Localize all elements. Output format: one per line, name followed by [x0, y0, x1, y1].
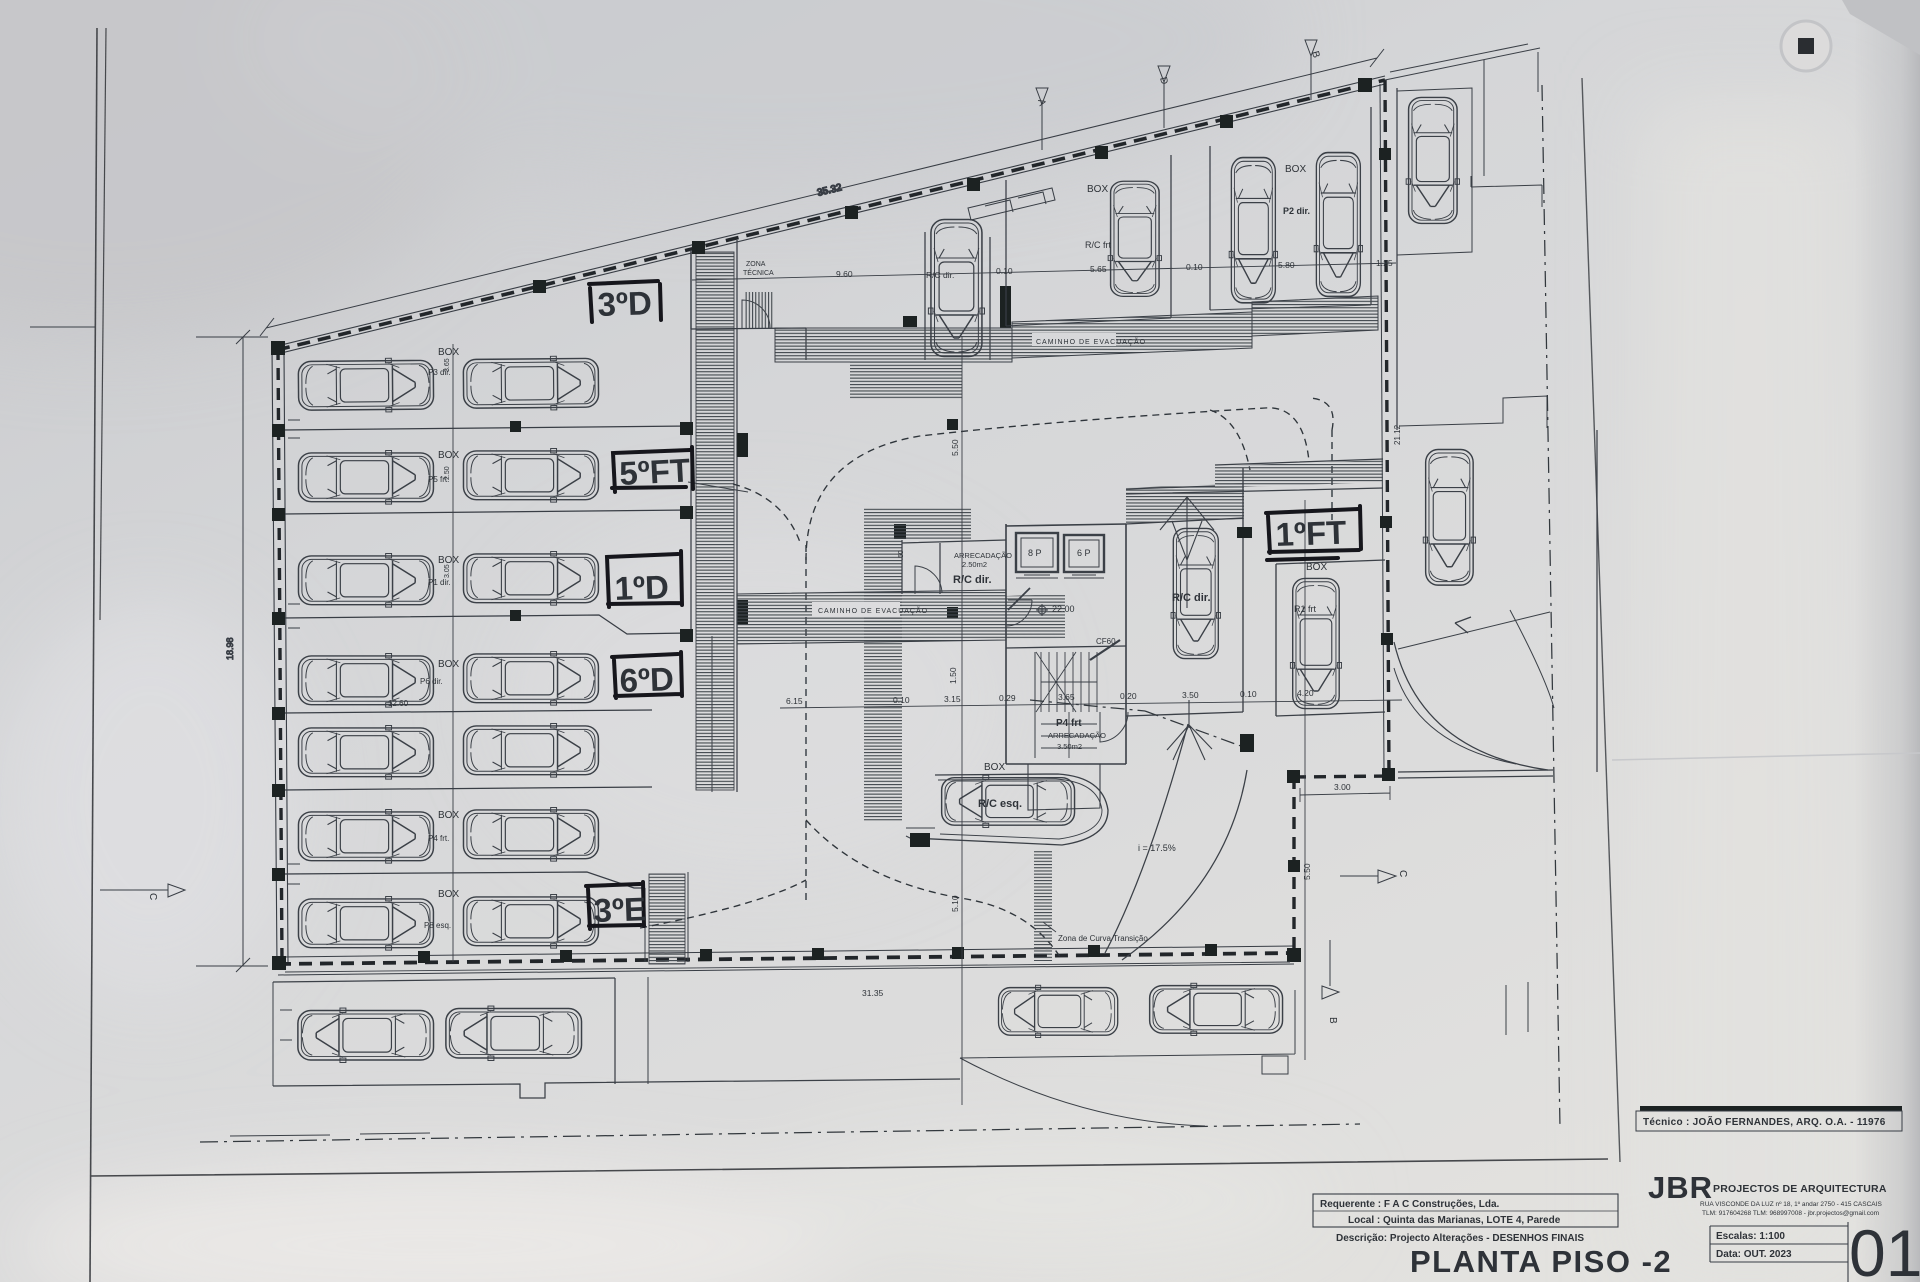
svg-text:R/C esq.: R/C esq. [978, 798, 1022, 810]
svg-text:12.60: 12.60 [388, 699, 409, 708]
svg-text:BOX: BOX [438, 659, 459, 670]
svg-text:1.25: 1.25 [1376, 258, 1393, 268]
svg-text:BOX: BOX [438, 555, 459, 566]
svg-text:P8 esq.: P8 esq. [424, 921, 451, 930]
svg-text:CF60: CF60 [1096, 637, 1116, 646]
svg-text:B: B [1327, 1017, 1338, 1024]
svg-text:BOX: BOX [438, 810, 459, 821]
svg-text:R/C dir.: R/C dir. [953, 574, 992, 586]
svg-text:Escalas: 1:100: Escalas: 1:100 [1716, 1231, 1785, 1242]
svg-text:3.15: 3.15 [944, 694, 961, 704]
svg-text:01: 01 [1849, 1216, 1920, 1282]
svg-text:JBR: JBR [1648, 1170, 1713, 1205]
svg-text:5.10: 5.10 [950, 895, 960, 912]
svg-text:RUA VISCONDE DA LUZ nº 18, 1º: RUA VISCONDE DA LUZ nº 18, 1º andar 2750… [1700, 1201, 1882, 1208]
svg-text:3.65: 3.65 [1058, 692, 1075, 702]
svg-text:P4 frt: P4 frt [1056, 718, 1082, 729]
svg-text:5.50: 5.50 [1302, 863, 1312, 880]
svg-text:2.50: 2.50 [444, 466, 451, 480]
svg-text:BOX: BOX [438, 450, 459, 461]
svg-text:BOX: BOX [1087, 184, 1108, 195]
svg-text:3ºD: 3ºD [597, 284, 653, 323]
svg-text:R/C dir.: R/C dir. [926, 270, 954, 280]
svg-text:BOX: BOX [984, 762, 1005, 773]
svg-text:Requerente : F A C Construçõe: Requerente : F A C Construções, Lda. [1320, 1199, 1500, 1210]
svg-text:3.50m2: 3.50m2 [1057, 742, 1082, 751]
svg-text:P6 dir.: P6 dir. [420, 677, 443, 686]
svg-text:4.20: 4.20 [1297, 688, 1314, 698]
svg-text:PLANTA PISO -2: PLANTA PISO -2 [1410, 1244, 1672, 1279]
svg-text:1ºFT: 1ºFT [1275, 514, 1347, 553]
svg-text:0.10: 0.10 [1186, 262, 1203, 272]
svg-text:6ºD: 6ºD [619, 660, 675, 699]
svg-text:CAMINHO DE EVACUAÇÃO: CAMINHO DE EVACUAÇÃO [818, 606, 928, 615]
svg-text:1ºD: 1ºD [614, 568, 670, 607]
svg-text:0.10: 0.10 [996, 266, 1013, 276]
svg-text:2.50m2: 2.50m2 [962, 560, 987, 569]
svg-text:C: C [147, 893, 158, 900]
svg-text:R/C frt: R/C frt [1085, 240, 1111, 250]
svg-text:5.65: 5.65 [1090, 264, 1107, 274]
svg-text:Data: OUT. 2023: Data: OUT. 2023 [1716, 1249, 1792, 1260]
svg-text:BOX: BOX [1306, 562, 1327, 573]
svg-text:3.50: 3.50 [1182, 690, 1199, 700]
svg-text:P1 dir.: P1 dir. [428, 578, 451, 587]
svg-text:0.10: 0.10 [1240, 689, 1257, 699]
svg-text:9.60: 9.60 [836, 269, 853, 279]
svg-text:BOX: BOX [1285, 164, 1306, 175]
svg-text:3.65: 3.65 [444, 358, 451, 372]
svg-text:0.10: 0.10 [893, 695, 910, 705]
svg-text:5.80: 5.80 [1278, 260, 1295, 270]
svg-text:8 P: 8 P [1028, 548, 1042, 558]
svg-text:R1 frt: R1 frt [1294, 604, 1317, 614]
svg-text:ARRECADAÇÃO: ARRECADAÇÃO [1048, 731, 1106, 740]
svg-text:0.20: 0.20 [1120, 691, 1137, 701]
svg-text:PROJECTOS DE ARQUITECTURA: PROJECTOS DE ARQUITECTURA [1713, 1183, 1887, 1195]
svg-text:1.50: 1.50 [948, 667, 958, 684]
svg-text:BOX: BOX [438, 347, 459, 358]
svg-text:3.05: 3.05 [444, 564, 451, 578]
svg-text:R/C dir.: R/C dir. [1172, 592, 1211, 604]
svg-text:P4 frt.: P4 frt. [428, 834, 449, 843]
svg-text:Zona de Curva Transição: Zona de Curva Transição [1058, 934, 1148, 943]
svg-text:Descrição: Projecto Alteraçõe: Descrição: Projecto Alterações - DESENHO… [1336, 1233, 1584, 1244]
svg-text:ZONA: ZONA [746, 261, 766, 268]
svg-text:3ºE: 3ºE [593, 890, 647, 929]
svg-text:0.29: 0.29 [999, 693, 1016, 703]
svg-text:Local : Quinta das Marianas, L: Local : Quinta das Marianas, LOTE 4, Par… [1348, 1215, 1561, 1226]
svg-text:TÉCNICA: TÉCNICA [743, 268, 774, 277]
svg-text:C: C [1397, 870, 1408, 877]
svg-text:BOX: BOX [438, 889, 459, 900]
svg-text:5.50: 5.50 [950, 439, 960, 456]
svg-text:22.00: 22.00 [1052, 604, 1075, 614]
svg-text:P2 dir.: P2 dir. [1283, 206, 1310, 216]
svg-text:Técnico : JOÃO FERNANDES, ARQ.: Técnico : JOÃO FERNANDES, ARQ. O.A. - 11… [1643, 1115, 1886, 1128]
svg-text:6.15: 6.15 [786, 696, 803, 706]
svg-text:6 P: 6 P [1077, 548, 1091, 558]
svg-text:3.00: 3.00 [1334, 782, 1351, 792]
svg-text:31.35: 31.35 [862, 988, 884, 998]
svg-text:CAMINHO DE EVACUAÇÃO: CAMINHO DE EVACUAÇÃO [1036, 337, 1146, 346]
svg-text:5ºFT: 5ºFT [618, 451, 691, 492]
svg-text:ARRECADAÇÃO: ARRECADAÇÃO [954, 551, 1012, 560]
svg-text:.50: .50 [898, 550, 905, 560]
svg-text:21.12: 21.12 [1393, 424, 1402, 445]
svg-text:i = 17.5%: i = 17.5% [1138, 843, 1176, 853]
svg-text:18.98: 18.98 [225, 637, 235, 660]
